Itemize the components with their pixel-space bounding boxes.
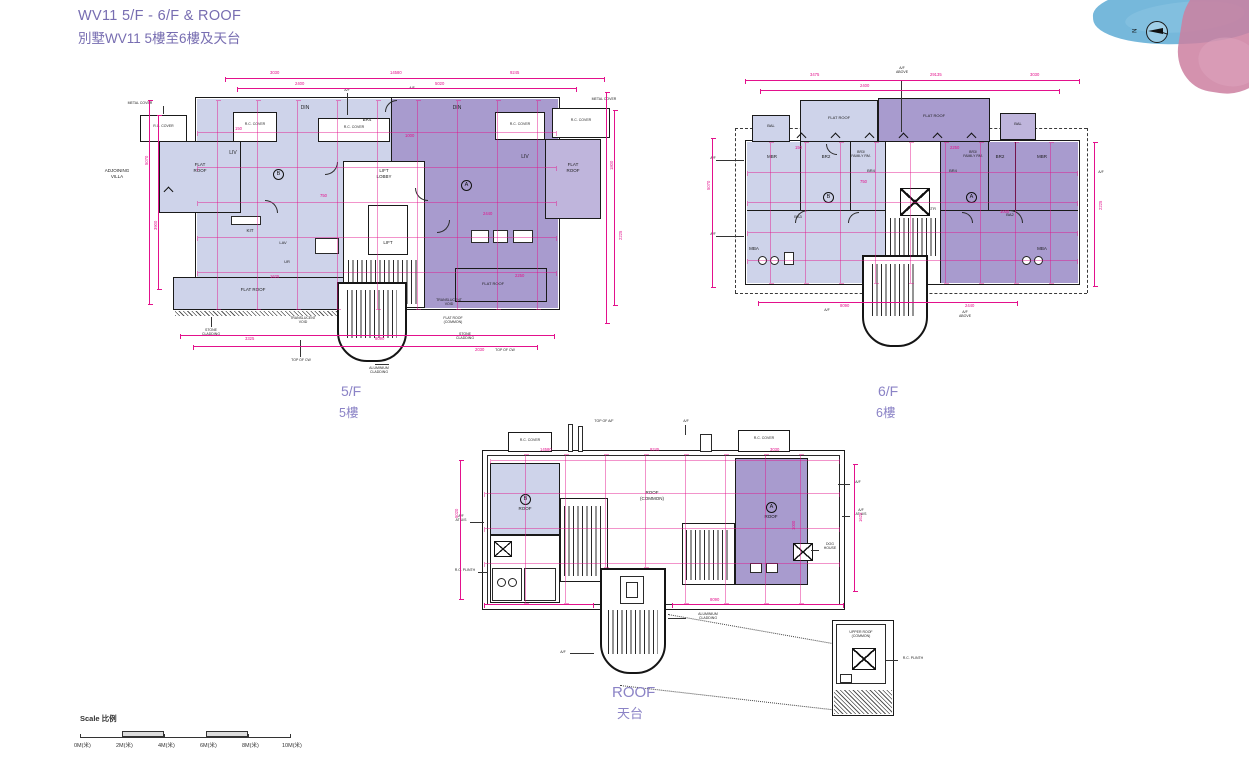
caption-5f-zh: 5樓 xyxy=(339,402,358,421)
watercolor-pink xyxy=(1172,0,1249,101)
rc-cover-box xyxy=(738,430,790,452)
wall xyxy=(988,142,989,210)
stair-treads xyxy=(564,506,604,576)
plan-5f: FLATROOF FLATROOF FLAT ROOF FLAT ROOF LI… xyxy=(85,70,630,405)
dog-house-box xyxy=(494,541,512,557)
top-of-af-label: TOP OF A/F xyxy=(584,419,624,423)
scale-tick xyxy=(206,734,207,738)
detail-leader xyxy=(668,614,834,644)
metal-cover-label: METAL COVER xyxy=(115,101,165,105)
lift-shaft xyxy=(368,205,408,255)
dimension-line xyxy=(565,454,566,604)
scale-tick-label: 8M(米) xyxy=(242,741,259,749)
dimension-line xyxy=(854,464,855,592)
dimension-text: 2250 xyxy=(950,146,959,150)
wall xyxy=(940,142,941,283)
dimension-line xyxy=(725,454,726,604)
dimension-text: 1625 xyxy=(270,275,279,279)
dimension-text: 9245 xyxy=(510,71,519,75)
dimension-text: 750 xyxy=(320,194,327,198)
dimension-line xyxy=(685,454,686,604)
dimension-text: 1000 xyxy=(405,134,414,138)
room-br4: BR4 xyxy=(347,117,387,123)
scale-tick xyxy=(248,734,249,738)
leader-line xyxy=(716,236,744,237)
north-arrow-icon xyxy=(1146,21,1168,43)
rc-cover-label: R.C. COVER xyxy=(140,124,187,128)
dimension-text: 2440 xyxy=(483,212,492,216)
dimension-line xyxy=(800,454,801,604)
dimension-text: 3475 xyxy=(810,73,819,77)
rc-plinth-label: R.C. PLINTH xyxy=(898,656,928,660)
dimension-text: 1000 xyxy=(792,521,796,530)
roof-label: ROOF xyxy=(754,514,788,520)
caption-roof-en: ROOF xyxy=(612,684,655,701)
bath-fixture xyxy=(315,238,339,254)
balcony-a xyxy=(1000,113,1036,140)
leader-line xyxy=(570,653,594,654)
vent-pipe xyxy=(578,426,583,452)
scale-tick-label: 6M(米) xyxy=(200,741,217,749)
rc-plinth-label: R.C. PLINTH xyxy=(450,568,480,572)
dimension-line xyxy=(745,80,1080,81)
scale-tick xyxy=(164,734,165,738)
af-dashed-line xyxy=(735,128,736,293)
dimension-text: 2400 xyxy=(295,82,304,86)
dimension-line xyxy=(484,528,840,529)
dimension-line xyxy=(758,302,1018,303)
leader-line xyxy=(842,516,850,517)
dimension-line xyxy=(712,138,713,288)
dimension-text: 150 xyxy=(795,146,802,150)
leader-line xyxy=(668,618,686,619)
dimension-line xyxy=(484,493,840,494)
dimension-line xyxy=(765,454,766,604)
dimension-line xyxy=(875,142,876,284)
unit-a-badge: A xyxy=(461,180,472,191)
dimension-line xyxy=(805,142,806,284)
basin xyxy=(497,578,506,587)
stair-treads xyxy=(608,610,658,654)
unit-b-badge: B xyxy=(273,169,284,180)
room-ur: UR xyxy=(277,259,297,264)
room-mba: MBA xyxy=(742,246,766,252)
watercolor-blue-light xyxy=(1124,0,1246,37)
leader-line xyxy=(478,572,488,573)
dimension-text: 3325 xyxy=(245,337,254,341)
dimension-line xyxy=(760,90,1060,91)
dimension-line xyxy=(747,172,1078,173)
rc-cover-label: R.C. COVER xyxy=(508,438,552,442)
page-subtitle: 別墅WV11 5樓至6樓及天台 xyxy=(78,27,241,47)
leader-line xyxy=(470,522,484,523)
flat-roof-label: FLAT ROOF xyxy=(463,281,523,286)
scale-tick xyxy=(80,734,81,738)
lift-overrun xyxy=(852,648,876,670)
dimension-line xyxy=(945,142,946,284)
room-br2: BR2 xyxy=(982,154,1018,160)
page-title: WV11 5/F - 6/F & ROOF xyxy=(78,8,241,24)
scale-tick xyxy=(122,734,123,738)
balcony-label: BAL xyxy=(1000,121,1036,126)
room-kit: KIT xyxy=(235,228,265,234)
roof-common-label: ROOF(COMMON) xyxy=(630,490,674,501)
af-label: A/F xyxy=(820,308,834,312)
scale-tick-label: 2M(米) xyxy=(116,741,133,749)
dimension-text: 5070 xyxy=(707,181,711,190)
rc-cover-label: R.C. COVER xyxy=(552,118,610,122)
dog-house-box xyxy=(793,543,813,561)
leader-line xyxy=(811,550,819,551)
room-din: DIN xyxy=(285,105,325,111)
dimension-line xyxy=(770,142,771,284)
dimension-line xyxy=(672,604,844,605)
leader-line xyxy=(211,317,212,327)
top-of-cw-label: TOP OF CW xyxy=(485,348,525,352)
translucent-void-label: TRANSLUCENTVOID xyxy=(427,298,471,307)
scale-bar-segment xyxy=(122,731,164,737)
flat-roof-label: FLAT ROOF xyxy=(808,115,870,120)
dog-house-label: DOGHOUSE xyxy=(818,542,842,551)
top-of-cw-label: TOP OF CW xyxy=(281,358,321,362)
dimension-text: 2250 xyxy=(515,274,524,278)
upper-roof-common-label: UPPER ROOF(COMMON) xyxy=(838,630,884,639)
dimension-line xyxy=(460,460,461,600)
scale-tick-label: 0M(米) xyxy=(74,741,91,749)
dimension-line xyxy=(484,563,840,564)
dimension-text: 9245 xyxy=(650,448,659,452)
dimension-text: 750 xyxy=(860,180,867,184)
wall xyxy=(800,142,801,210)
rc-cover-label: R.C. COVER xyxy=(738,436,790,440)
dimension-text: 5020 xyxy=(435,82,444,86)
bath-fixture xyxy=(784,252,794,265)
dimension-line xyxy=(980,142,981,284)
leader-line xyxy=(300,340,301,357)
plan-6f: FLAT ROOF FLAT ROOF BAL BAL MBR BR2 BR3/… xyxy=(700,60,1110,400)
floor-plan-page: N WV11 5/F - 6/F & ROOF 別墅WV11 5樓至6樓及天台 … xyxy=(0,0,1249,762)
leader-line xyxy=(347,93,348,115)
balcony-label: BAL xyxy=(752,123,790,128)
leader-line xyxy=(886,660,898,661)
translucent-void-label: TRANSLUCENTVOID xyxy=(281,316,325,325)
af-label: A/F xyxy=(850,480,866,484)
metal-cover-label: METAL COVER xyxy=(579,97,629,101)
caption-roof-zh: 天台 xyxy=(617,703,643,722)
dimension-line xyxy=(225,78,605,79)
leader-line xyxy=(685,425,686,435)
dimension-line xyxy=(484,604,594,605)
dimension-line xyxy=(490,460,840,461)
caption-6f-zh: 6樓 xyxy=(876,402,895,421)
dimension-line xyxy=(197,202,557,203)
dimension-line xyxy=(605,454,606,568)
north-label: N xyxy=(1132,29,1140,33)
scale-label: Scale 比例 xyxy=(80,713,117,724)
af-label: A/F xyxy=(1094,170,1108,174)
flat-roof-label: FLAT ROOF xyxy=(213,287,293,293)
vent-pipe xyxy=(568,424,573,452)
dimension-text: 3030 xyxy=(270,71,279,75)
stone-cladding-label: STONECLADDING xyxy=(447,332,483,341)
flat-roof-common-label: FLAT ROOF(COMMON) xyxy=(429,316,477,325)
plan-roof: R.C. COVER R.C. COVER TOP OF A/F A/F B R… xyxy=(450,418,930,730)
dimension-line xyxy=(1094,142,1095,287)
flat-roof-east xyxy=(545,139,601,219)
af-label: A/F xyxy=(678,419,694,423)
dimension-line xyxy=(1050,142,1051,284)
wall xyxy=(747,210,885,211)
room-liv: LIV xyxy=(213,150,253,156)
dimension-line xyxy=(193,346,538,347)
room-br3-family: BR3/FAMILY RM. xyxy=(846,150,876,159)
dimension-text: 3030 xyxy=(770,448,779,452)
dimension-line xyxy=(149,100,150,305)
aluminium-cladding-label: ALUMINIUMCLADDING xyxy=(357,366,401,375)
room-liv: LIV xyxy=(505,154,545,160)
dimension-line xyxy=(525,454,526,604)
dimension-line xyxy=(614,110,615,306)
dimension-line xyxy=(1015,142,1016,284)
dimension-text: 3030 xyxy=(1030,73,1039,77)
dimension-line xyxy=(180,335,555,336)
stair-treads xyxy=(347,290,397,338)
af-above-label: A/FABOVE xyxy=(955,310,975,319)
dimension-line xyxy=(747,232,1078,233)
staircase xyxy=(890,218,936,256)
dimension-text: 2440 xyxy=(965,304,974,308)
dimension-line xyxy=(747,260,1078,261)
balcony-b xyxy=(752,115,790,142)
adjoining-villa-label: ADJOININGVILLA xyxy=(93,168,141,179)
scale-tick-label: 4M(米) xyxy=(158,741,175,749)
dimension-text: 2400 xyxy=(860,84,869,88)
caption-5f-en: 5/F xyxy=(341,383,361,399)
leader-line xyxy=(375,364,389,365)
roof-fixture xyxy=(766,563,778,573)
dimension-text: 8090 xyxy=(840,304,849,308)
dimension-line xyxy=(158,115,159,290)
leader-line xyxy=(163,106,164,114)
dimension-text: 2225 xyxy=(1099,201,1103,210)
af-dashed-line xyxy=(1087,128,1088,293)
af-label: A/F xyxy=(556,650,570,654)
room-lav: LAV xyxy=(273,240,293,245)
dimension-line xyxy=(197,237,557,238)
dimension-line xyxy=(747,202,1078,203)
detail-fixture xyxy=(840,674,852,683)
dimension-text: 3900 xyxy=(154,221,158,230)
af-above-label: A/FABOVE xyxy=(892,66,912,75)
dimension-text: 29135 xyxy=(930,73,942,77)
leader-line xyxy=(838,484,850,485)
watercolor-pink-light xyxy=(1193,31,1249,93)
dimension-line xyxy=(910,142,911,284)
plinth-hatch xyxy=(834,690,892,714)
flat-roof-label: FLAT ROOF xyxy=(900,113,968,118)
leader-line xyxy=(716,160,744,161)
dimension-text: 1800 xyxy=(610,161,614,170)
roof-fixture xyxy=(750,563,762,573)
dimension-line xyxy=(197,132,557,133)
basin xyxy=(508,578,517,587)
lift-lobby-label: LIFTLOBBY xyxy=(347,168,421,179)
dimension-text: 8090 xyxy=(375,337,384,341)
scale-bar-line xyxy=(80,737,290,738)
lift-label: LIFT xyxy=(368,240,408,246)
leader-line xyxy=(901,80,902,132)
room-mbr: MBR xyxy=(752,154,792,160)
dimension-text: 150 xyxy=(235,127,242,131)
rc-cover-box xyxy=(552,108,610,138)
dimension-line xyxy=(197,272,557,273)
dimension-line xyxy=(645,454,646,568)
dimension-text: 14580 xyxy=(390,71,402,75)
dimension-line xyxy=(237,88,577,89)
dimension-line xyxy=(197,167,557,168)
dimension-line xyxy=(840,142,841,284)
dimension-text: 2225 xyxy=(619,231,623,240)
rc-cover-label: R.C. COVER xyxy=(318,125,390,129)
scale-bar-segment xyxy=(206,731,248,737)
flat-roof-label: FLATROOF xyxy=(553,162,593,173)
roof-room xyxy=(524,568,556,601)
dimension-text: 8090 xyxy=(710,598,719,602)
scale-tick-label: 10M(米) xyxy=(282,741,302,749)
watercolor-blue xyxy=(1092,0,1249,49)
rc-cover-box xyxy=(140,115,187,142)
room-br2: BR2 xyxy=(808,154,844,160)
dimension-text: 5070 xyxy=(145,156,149,165)
room-mbr: MBR xyxy=(1022,154,1062,160)
vent-pipe xyxy=(700,434,712,452)
dimension-text: 2030 xyxy=(475,348,484,352)
caption-6f-en: 6/F xyxy=(878,383,898,399)
unit-a-badge: A xyxy=(766,502,777,513)
dimension-text: 5020 xyxy=(455,509,459,518)
dimension-text: 1000 xyxy=(1000,210,1009,214)
dimension-line xyxy=(606,92,607,324)
lift-overrun-inner xyxy=(626,582,638,598)
dimension-text: 14580 xyxy=(540,448,552,452)
dimension-text: 1625 xyxy=(859,513,863,522)
scale-tick xyxy=(290,734,291,738)
